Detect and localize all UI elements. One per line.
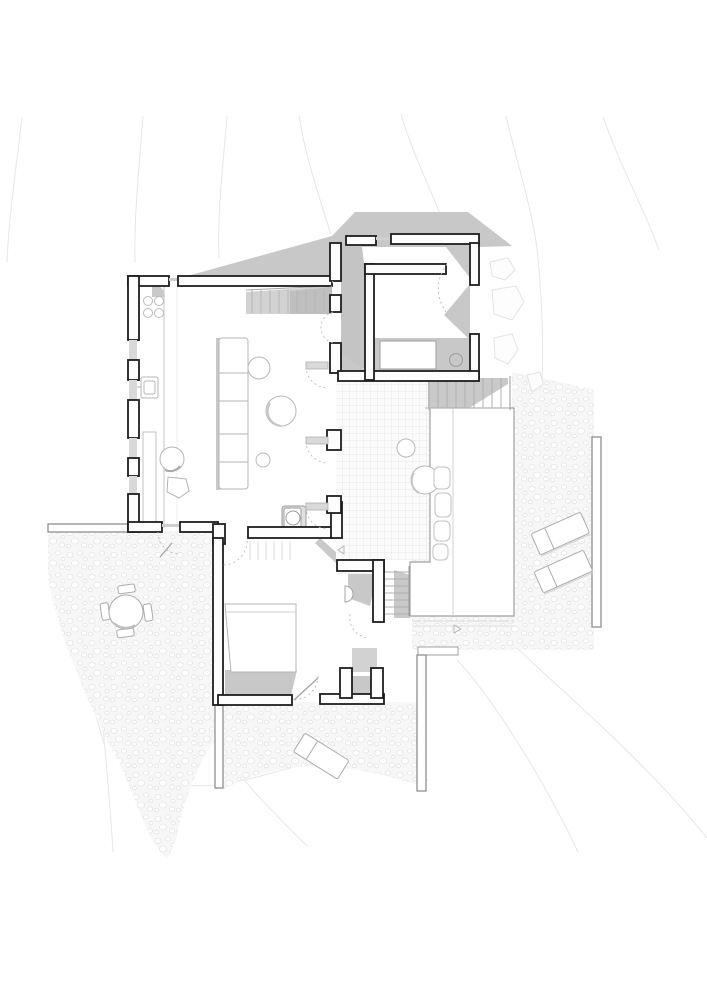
double-bed	[225, 604, 296, 672]
floor-plan-canvas: Hillside house ground floor plan Black-l…	[0, 0, 707, 1000]
shadow-entry-stair-dark	[290, 287, 332, 314]
shadow-lower-stair	[394, 570, 410, 618]
retaining-wall-terrace	[48, 524, 130, 532]
guest-bed	[380, 341, 436, 369]
deck-step-wall	[418, 647, 458, 655]
retaining-wall-east	[592, 437, 601, 627]
sideboard-sofa	[219, 338, 248, 489]
dining-bench	[143, 432, 156, 524]
floor-plan-page: Hillside house ground floor plan Black-l…	[0, 0, 707, 1000]
